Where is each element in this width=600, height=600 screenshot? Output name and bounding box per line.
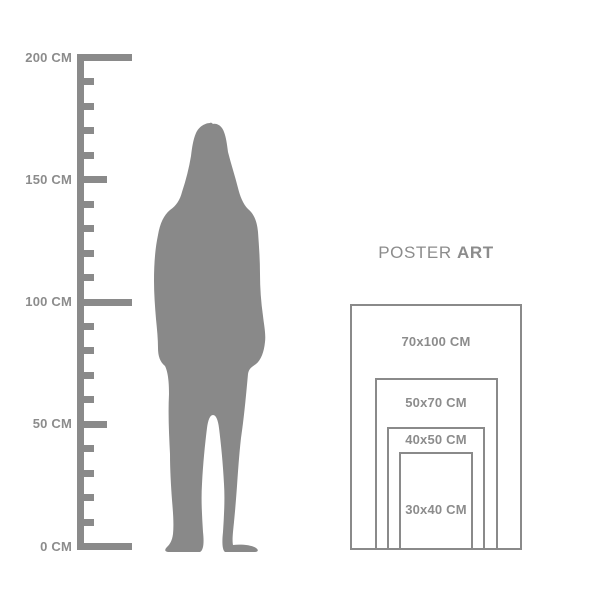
poster-size-label-40x50: 40x50 CM [389, 432, 483, 448]
height-ruler: 200 CM150 CM100 CM50 CM0 CM [0, 0, 160, 600]
ruler-tick-major-100 [84, 299, 132, 306]
ruler-label-150: 150 CM [0, 172, 72, 188]
ruler-tick-medium-150 [84, 176, 107, 183]
ruler-label-100: 100 CM [0, 294, 72, 310]
ruler-label-0: 0 CM [0, 539, 72, 555]
ruler-tick-minor-20 [84, 494, 94, 501]
ruler-tick-minor-120 [84, 250, 94, 257]
woman-silhouette-shape [154, 123, 265, 552]
ruler-tick-minor-170 [84, 127, 94, 134]
poster-frame-30x40: 30x40 CM [399, 452, 473, 550]
ruler-bar [77, 54, 84, 550]
poster-size-label-70x100: 70x100 CM [352, 334, 520, 350]
poster-title-regular: POSTER [378, 243, 452, 262]
ruler-tick-minor-180 [84, 103, 94, 110]
ruler-tick-major-0 [84, 543, 132, 550]
ruler-label-50: 50 CM [0, 416, 72, 432]
ruler-tick-minor-160 [84, 152, 94, 159]
ruler-tick-minor-10 [84, 519, 94, 526]
ruler-tick-minor-80 [84, 347, 94, 354]
ruler-tick-minor-130 [84, 225, 94, 232]
poster-title-bold: ART [457, 243, 494, 262]
size-guide-diagram: 200 CM150 CM100 CM50 CM0 CM POSTER ART 7… [0, 0, 600, 600]
ruler-tick-minor-140 [84, 201, 94, 208]
ruler-tick-minor-70 [84, 372, 94, 379]
poster-art-title: POSTER ART [336, 243, 536, 265]
ruler-tick-minor-30 [84, 470, 94, 477]
ruler-tick-minor-40 [84, 445, 94, 452]
ruler-tick-minor-60 [84, 396, 94, 403]
ruler-tick-medium-50 [84, 421, 107, 428]
ruler-tick-minor-90 [84, 323, 94, 330]
ruler-tick-major-200 [84, 54, 132, 61]
woman-silhouette [153, 120, 266, 552]
poster-size-label-30x40: 30x40 CM [401, 502, 471, 518]
ruler-label-200: 200 CM [0, 50, 72, 66]
ruler-tick-minor-190 [84, 78, 94, 85]
ruler-tick-minor-110 [84, 274, 94, 281]
poster-size-label-50x70: 50x70 CM [377, 395, 496, 411]
